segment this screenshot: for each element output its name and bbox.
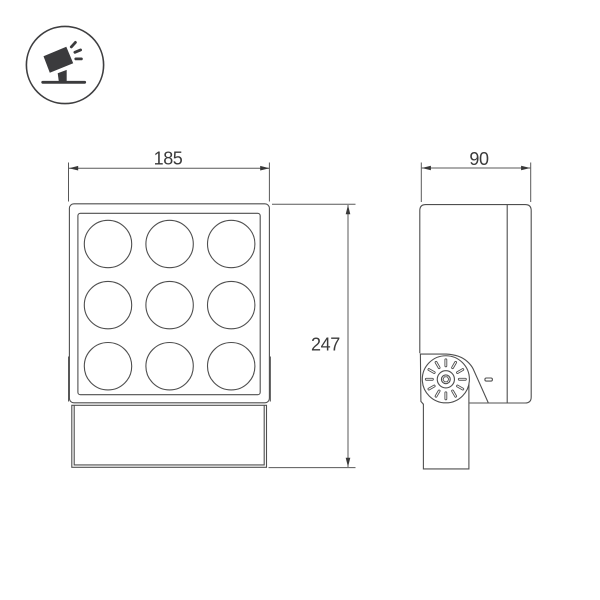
svg-text:247: 247 <box>311 334 340 354</box>
svg-text:185: 185 <box>154 149 183 169</box>
svg-text:90: 90 <box>469 149 489 169</box>
